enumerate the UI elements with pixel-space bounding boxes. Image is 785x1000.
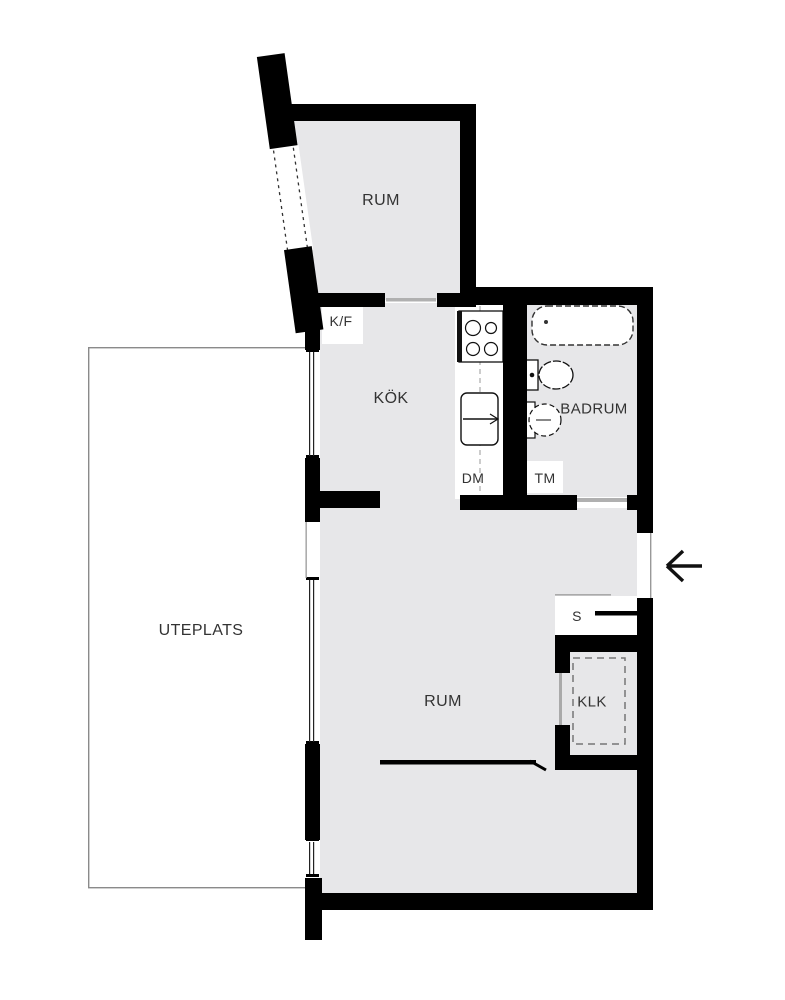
kitchen-sink-icon — [461, 393, 498, 445]
room-main-label: RUM — [424, 693, 462, 711]
wall-left-bottom-corner — [305, 878, 322, 940]
wall-partition — [380, 760, 536, 765]
bathtub-icon — [532, 306, 633, 345]
wall-closet-left-lower — [555, 725, 570, 758]
bathroom-door-threshold — [577, 498, 627, 502]
wall-kitchen-top-right — [437, 293, 462, 307]
wall-closet-top — [555, 635, 653, 652]
washing-machine-label: TM — [534, 470, 555, 486]
cabinet-label: S — [572, 608, 582, 624]
wall-closet-bottom — [555, 755, 653, 770]
wall-bathroom-top — [460, 287, 653, 305]
wall-kitchen-bathroom — [503, 293, 527, 510]
bathroom-label: BADRUM — [560, 401, 627, 418]
wall-kitchen-stub — [318, 491, 380, 508]
diagonal-wall-upper — [257, 53, 298, 150]
patio-border-top — [88, 347, 307, 348]
kitchen-window — [304, 349, 320, 458]
stove-icon — [457, 311, 503, 362]
room-window-lower — [304, 838, 320, 878]
room-window-upper — [304, 577, 320, 744]
kitchen-passage-floor — [380, 491, 460, 510]
wall-closet-left-upper — [555, 652, 570, 673]
floor-plan: RUM K/F KÖK BADRUM DM TM UTEPLATS S RUM … — [0, 0, 785, 1000]
wall-room-top-right — [460, 104, 476, 307]
wall-top — [276, 104, 476, 121]
wall-left-mid — [305, 744, 320, 840]
room-top-label: RUM — [362, 192, 400, 210]
closet-label: KLK — [577, 694, 607, 711]
wall-bathdoor-right — [627, 495, 653, 510]
entrance-door-opening — [650, 533, 651, 598]
patio-door-opening — [306, 522, 307, 578]
closet-door-opening — [559, 673, 562, 725]
wall-kitchen-bottom — [460, 495, 577, 510]
patio-border-left — [88, 347, 89, 888]
wall-bottom — [318, 893, 653, 910]
patio-outline — [88, 347, 307, 888]
cabinet-divider-line — [595, 611, 640, 616]
patio-border-bottom — [88, 887, 307, 888]
cabinet-front-line — [555, 594, 611, 596]
room-top-door-threshold — [386, 298, 436, 302]
entrance-arrow-icon — [667, 551, 702, 581]
floor-plan-drawing — [0, 0, 785, 1000]
toilet-icon — [526, 360, 573, 390]
wall-left-kitchen-lower — [305, 458, 320, 522]
fridge-freezer-label: K/F — [330, 313, 353, 329]
kitchen-label: KÖK — [374, 390, 409, 408]
patio-label: UTEPLATS — [159, 622, 244, 640]
dishwasher-label: DM — [462, 470, 485, 486]
